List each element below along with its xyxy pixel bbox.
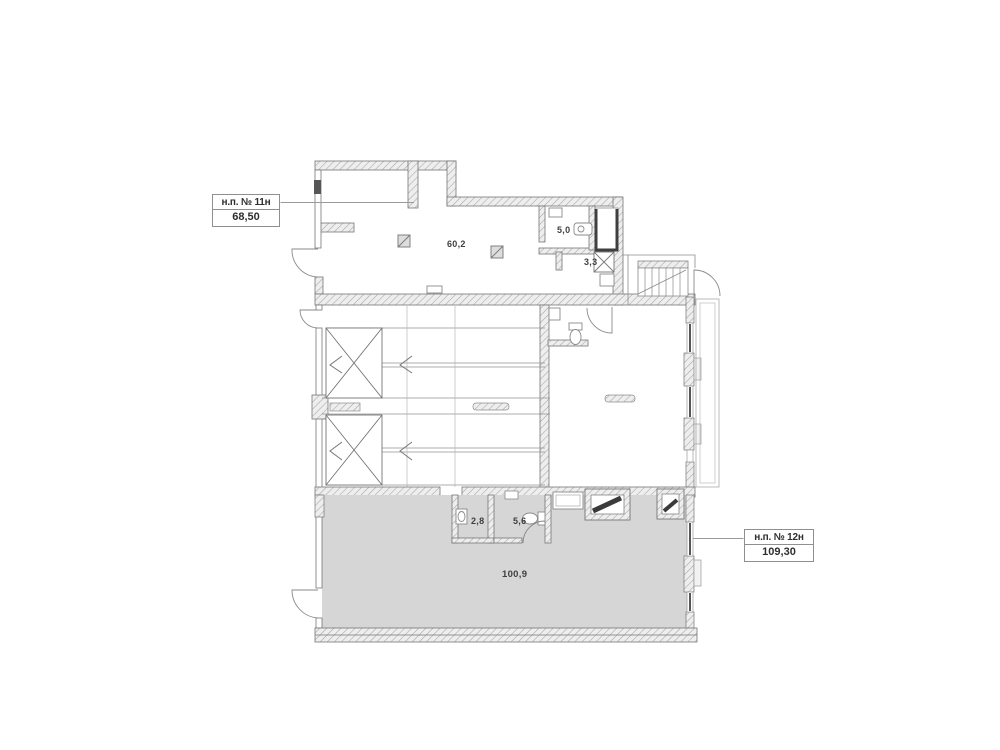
unit-11n-number: н.п. № 11н	[213, 195, 279, 210]
unit-12n-floor	[322, 495, 687, 628]
room-area-bathroom-upper: 5,0	[557, 225, 570, 235]
pilaster	[694, 560, 701, 586]
unit-12n-number: н.п. № 12н	[745, 530, 813, 545]
door-entrance	[694, 270, 720, 296]
middle-divider-wall	[540, 305, 549, 488]
plan-drawing	[0, 0, 1000, 750]
wall-box-icon	[600, 274, 614, 286]
duct-box-hatched	[657, 489, 684, 519]
door-middle-left	[300, 310, 318, 328]
sink-icon	[549, 208, 562, 217]
washbasin-icon	[456, 509, 467, 524]
unit-label-12n: н.п. № 12н 109,30	[744, 529, 814, 562]
stairs-icon	[638, 268, 688, 296]
leader-line-12n	[693, 538, 745, 539]
room-area-hall-upper: 60,2	[447, 239, 466, 249]
door-upper-left	[292, 249, 318, 277]
room-area-shaft-room: 3,3	[584, 257, 597, 267]
floor-plan-page: н.п. № 11н 68,50 н.п. № 12н 109,30 60,2 …	[0, 0, 1000, 750]
elevator-shaft	[595, 208, 618, 251]
window-icon	[314, 180, 321, 194]
wall-box-icon	[505, 491, 518, 499]
door-wc-middle	[587, 307, 612, 333]
unit-12n-area: 109,30	[745, 545, 813, 561]
duct-box-hatched	[585, 489, 630, 520]
room-area-hall-lower: 100,9	[502, 569, 527, 580]
room-area-bathroom-lower: 5,6	[513, 516, 526, 526]
door-lower-left	[292, 590, 318, 618]
toilet-icon	[569, 323, 582, 345]
unit-11n-left-wall	[314, 170, 321, 248]
middle-right-exterior-wall	[684, 297, 701, 488]
room-area-storage-lower: 2,8	[471, 516, 484, 526]
wall-niche	[427, 286, 442, 293]
unit-label-11n: н.п. № 11н 68,50	[212, 194, 280, 227]
bottom-wall	[315, 628, 697, 642]
terrace-outline	[696, 299, 719, 487]
unit-11n-area: 68,50	[213, 210, 279, 226]
wc-middle	[548, 308, 588, 346]
leader-line-11n	[277, 202, 414, 203]
sink-icon	[549, 308, 560, 320]
